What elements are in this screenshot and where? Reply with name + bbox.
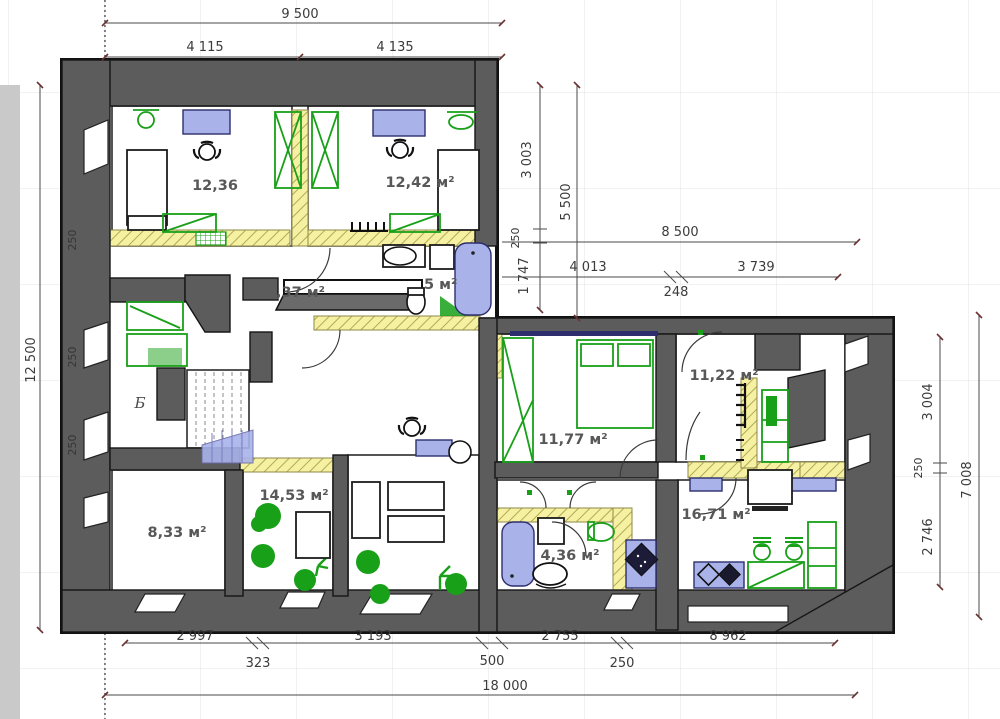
counter-icon bbox=[690, 478, 722, 491]
balcony-door-icon bbox=[510, 331, 658, 336]
room-12-36-label: 12,36 bbox=[192, 178, 238, 194]
bath-top-label: 5 м² bbox=[424, 277, 457, 293]
dim-12500: 12 500 bbox=[24, 337, 39, 383]
nightstand-icon bbox=[128, 216, 166, 230]
dim-248: 248 bbox=[664, 285, 689, 300]
plant-icon bbox=[370, 584, 390, 604]
window-icon bbox=[280, 592, 325, 608]
stool-icon bbox=[785, 538, 803, 560]
window-icon bbox=[84, 492, 108, 528]
dim-5500: 5 500 bbox=[559, 183, 574, 220]
dim-323: 323 bbox=[246, 656, 271, 671]
appliance-icon bbox=[196, 232, 226, 245]
dim-2755: 2 755 bbox=[541, 629, 578, 644]
washing-machine-icon bbox=[430, 245, 454, 269]
floor-plan-drawing: 12,36 12,42 м² ,37 м² 5 м² 11,77 м² 11,2… bbox=[0, 0, 1000, 719]
window-icon bbox=[688, 606, 788, 622]
dim-4135: 4 135 bbox=[376, 40, 413, 55]
floor-plan-page: 12,36 12,42 м² ,37 м² 5 м² 11,77 м² 11,2… bbox=[0, 0, 1000, 719]
desk-icon bbox=[183, 110, 230, 134]
desk-icon bbox=[416, 440, 452, 456]
plant-icon bbox=[294, 569, 316, 591]
dim-8500: 8 500 bbox=[661, 225, 698, 240]
bathtub-icon bbox=[502, 522, 534, 586]
plant-icon bbox=[356, 550, 380, 574]
dim-4013: 4 013 bbox=[569, 260, 606, 275]
dim-18000: 18 000 bbox=[482, 679, 528, 694]
bed-icon bbox=[127, 150, 167, 225]
desk-icon bbox=[373, 110, 425, 136]
dim-4115: 4 115 bbox=[186, 40, 223, 55]
room-12-42-label: 12,42 м² bbox=[385, 175, 454, 191]
toilet-icon bbox=[408, 288, 424, 295]
dim-2746: 2 746 bbox=[921, 518, 936, 555]
dim-250: 250 bbox=[509, 228, 522, 249]
dim-r250: 250 bbox=[912, 458, 925, 479]
dim-3004: 3 004 bbox=[921, 383, 936, 420]
section-marker: Б bbox=[133, 394, 145, 412]
room-11-22-label: 11,22 м² bbox=[689, 368, 758, 384]
dim-1747: 1 747 bbox=[517, 257, 532, 294]
bench-icon bbox=[296, 512, 330, 558]
washing-machine-icon bbox=[538, 518, 564, 544]
dim-9500: 9 500 bbox=[281, 7, 318, 22]
dim-3739: 3 739 bbox=[737, 260, 774, 275]
stool-icon bbox=[753, 538, 771, 560]
dim-3003: 3 003 bbox=[520, 141, 535, 178]
room-8-33-label: 8,33 м² bbox=[147, 525, 206, 541]
window-icon bbox=[84, 120, 108, 174]
room-11-77-label: 11,77 м² bbox=[538, 432, 607, 448]
sink-icon bbox=[384, 247, 416, 265]
sink-icon bbox=[533, 563, 567, 585]
dim-3193: 3 193 bbox=[354, 629, 391, 644]
round-table-icon bbox=[449, 441, 471, 463]
shelving-icon bbox=[766, 396, 777, 426]
dim-wall-250-b: 250 bbox=[66, 347, 79, 368]
room-14-53-label: 14,53 м² bbox=[259, 488, 328, 504]
dim-wall-250-c: 250 bbox=[66, 435, 79, 456]
window-icon bbox=[84, 412, 108, 460]
room-16-71-label: 16,71 м² bbox=[681, 507, 750, 523]
cabinet-icon bbox=[352, 482, 380, 538]
page-left-gray-strip bbox=[0, 85, 20, 719]
dim-wall-250-a: 250 bbox=[66, 230, 79, 251]
table-icon bbox=[388, 482, 444, 510]
table-icon bbox=[388, 516, 444, 542]
dim-2997: 2 997 bbox=[176, 629, 213, 644]
cushion-icon bbox=[148, 348, 182, 366]
dim-8962: 8 962 bbox=[709, 629, 746, 644]
window-icon bbox=[84, 322, 108, 368]
cabinet-icon bbox=[748, 470, 792, 504]
plant-icon bbox=[251, 544, 275, 568]
dim-b250: 250 bbox=[610, 656, 635, 671]
dim-7008: 7 008 bbox=[960, 461, 975, 498]
counter-icon bbox=[790, 478, 836, 491]
dim-500: 500 bbox=[480, 654, 505, 669]
bath-bottom-label: 4,36 м² bbox=[540, 548, 599, 564]
hall-label: ,37 м² bbox=[276, 285, 325, 301]
cabinet-icon bbox=[752, 506, 788, 511]
